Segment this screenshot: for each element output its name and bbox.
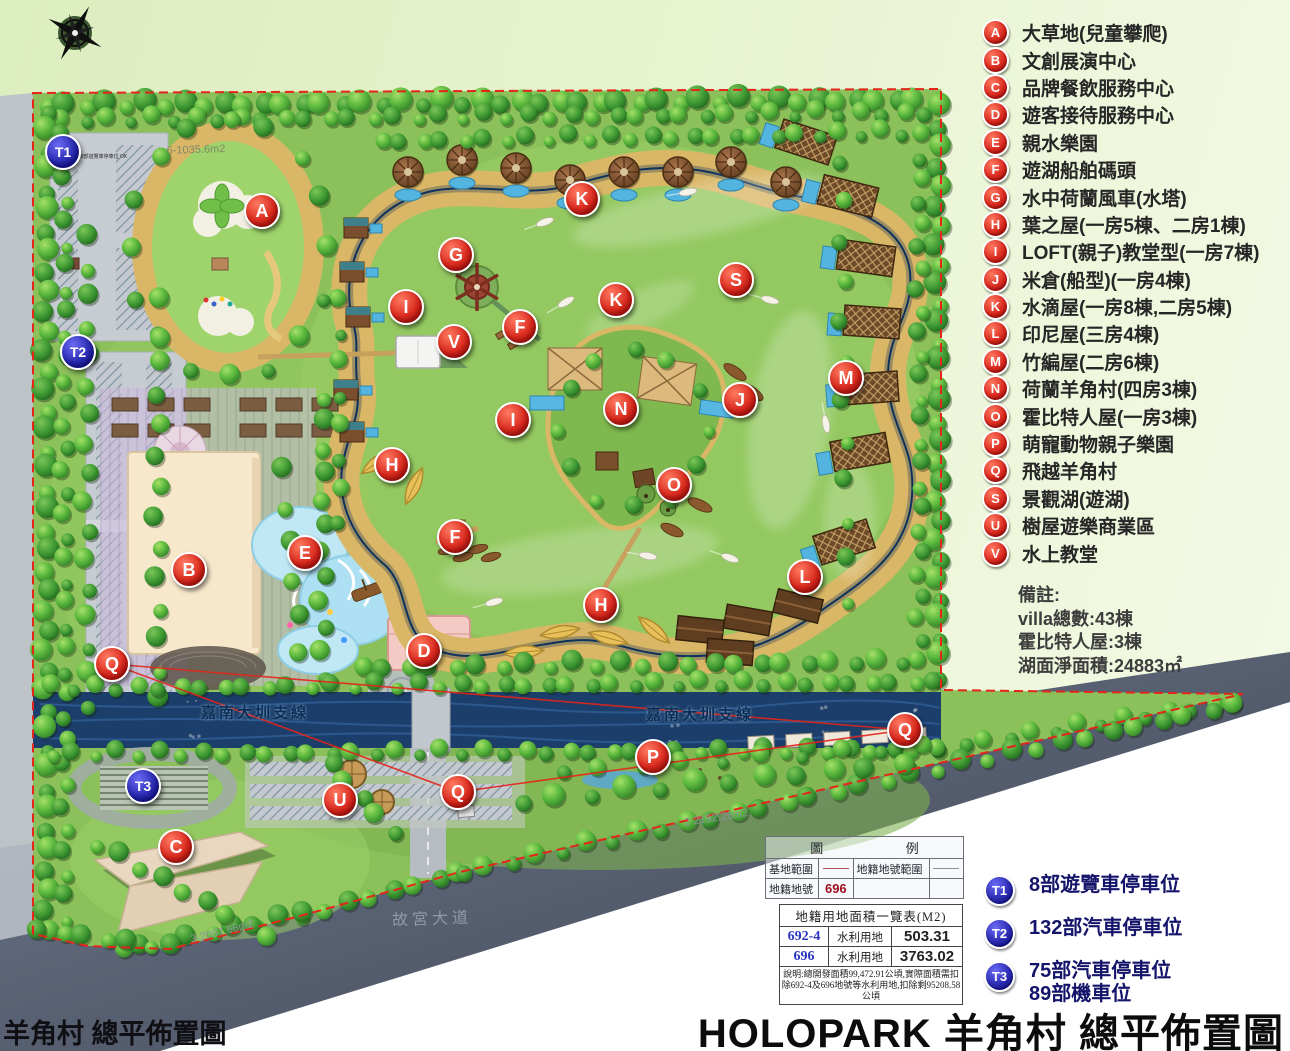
legend-item-label: 飛越羊角村 xyxy=(1022,457,1117,484)
parking-item-label: 132部汽車停車位 xyxy=(1029,917,1182,940)
legend-table-title-right: 例 xyxy=(906,838,919,857)
legend-item-S: S景觀湖(遊湖) xyxy=(982,485,1259,512)
legend-table-lot-label: 地籍地號 xyxy=(766,879,819,899)
area-table-title: 地籍用地面積一覽表(M2) xyxy=(780,905,963,927)
legend-item-E: E親水樂園 xyxy=(982,129,1259,156)
legend-item-F: F遊湖船舶碼頭 xyxy=(982,156,1259,183)
legend-item-H: H葉之屋(一房5棟、二房1棟) xyxy=(982,211,1259,238)
note-line: 霍比特人屋:3棟 xyxy=(1018,631,1182,655)
legend-item-P: P萌寵動物親子樂園 xyxy=(982,430,1259,457)
legend-marker-icon: Q xyxy=(982,457,1009,484)
area-value: 503.31 xyxy=(892,927,963,947)
legend-item-label: 荷蘭羊角村(四房3棟) xyxy=(1022,375,1197,402)
legend-item-A: A大草地(兒童攀爬) xyxy=(982,19,1259,46)
legend-item-label: 霍比特人屋(一房3棟) xyxy=(1022,403,1197,430)
parking-item-T2: T2132部汽車停車位 xyxy=(984,917,1182,949)
legend-marker-icon: L xyxy=(982,320,1009,347)
parking-item-label: 75部汽車停車位89部機車位 xyxy=(1029,960,1171,1006)
legend-item-L: L印尼屋(三房4棟) xyxy=(982,320,1259,347)
note-line: 湖面淨面積:24883㎡ xyxy=(1018,655,1182,679)
legend-item-label: 葉之屋(一房5棟、二房1棟) xyxy=(1022,211,1246,238)
parking-item-label: 8部遊覽車停車位 xyxy=(1029,874,1180,897)
legend-item-I: ILOFT(親子)教堂型(一房7棟) xyxy=(982,238,1259,265)
legend-item-O: O霍比特人屋(一房3棟) xyxy=(982,402,1259,429)
legend-item-label: 遊湖船舶碼頭 xyxy=(1022,156,1136,183)
legend-marker-icon: J xyxy=(982,266,1009,293)
legend-marker-icon: I xyxy=(982,238,1009,265)
parking-marker-icon: T1 xyxy=(984,875,1015,906)
area-value: 3763.02 xyxy=(892,947,963,967)
legend: A大草地(兒童攀爬)B文創展演中心C品牌餐飲服務中心D遊客接待服務中心E親水樂園… xyxy=(982,19,1259,567)
legend-table-lot-range: 地籍地號範圍 xyxy=(853,859,929,879)
legend-marker-icon: C xyxy=(982,74,1009,101)
area-table-note: 說明:總開發面積99,472.91公頃,實際面積需扣除692-4及696地號等水… xyxy=(780,967,963,1005)
legend-marker-icon: S xyxy=(982,485,1009,512)
site-range-swatch xyxy=(823,868,849,869)
legend-marker-icon: A xyxy=(982,19,1009,46)
legend-item-N: N荷蘭羊角村(四房3棟) xyxy=(982,375,1259,402)
legend-item-label: 樹屋遊樂商業區 xyxy=(1022,512,1155,539)
legend-marker-icon: U xyxy=(982,512,1009,539)
legend-item-label: 萌寵動物親子樂園 xyxy=(1022,430,1174,457)
parking-item-T3: T375部汽車停車位89部機車位 xyxy=(984,960,1182,1006)
legend-marker-icon: D xyxy=(982,101,1009,128)
legend-marker-icon: K xyxy=(982,293,1009,320)
legend-item-label: 文創展演中心 xyxy=(1022,47,1136,74)
table-row: 696 水利用地 3763.02 xyxy=(780,947,963,967)
footer-title: 羊角村 總平佈置圖 xyxy=(3,1012,227,1051)
parking-item-T1: T18部遊覽車停車位 xyxy=(984,874,1182,906)
legend-table-site-range: 基地範圍 xyxy=(766,859,819,879)
legend-marker-icon: H xyxy=(982,211,1009,238)
parking-marker-icon: T3 xyxy=(984,961,1015,992)
parking-legend: T18部遊覽車停車位T2132部汽車停車位T375部汽車停車位89部機車位 xyxy=(984,874,1182,1017)
legend-marker-icon: M xyxy=(982,348,1009,375)
legend-item-label: 遊客接待服務中心 xyxy=(1022,101,1174,128)
legend-item-label: LOFT(親子)教堂型(一房7棟) xyxy=(1022,238,1259,265)
site-plan-poster: 嘉南大圳支線嘉南大圳支線故宮大道6-1035.6m23-2097.66m22-2… xyxy=(0,0,1290,1051)
legend-marker-icon: N xyxy=(982,375,1009,402)
note-line: villa總數:43棟 xyxy=(1018,608,1182,632)
legend-item-label: 竹編屋(二房6棟) xyxy=(1022,348,1159,375)
area-table: 地籍用地面積一覽表(M2) 692-4 水利用地 503.31 696 水利用地… xyxy=(779,904,963,1005)
legend-item-label: 水滴屋(一房8棟,二房5棟) xyxy=(1022,293,1232,320)
parking-marker-icon: T2 xyxy=(984,918,1015,949)
area-lot: 692-4 xyxy=(780,927,829,947)
notes-lines: villa總數:43棟霍比特人屋:3棟湖面淨面積:24883㎡ xyxy=(1018,608,1182,679)
legend-item-J: J米倉(船型)(一房4棟) xyxy=(982,266,1259,293)
notes-heading: 備註: xyxy=(1018,584,1182,608)
legend-item-B: B文創展演中心 xyxy=(982,46,1259,73)
area-use: 水利用地 xyxy=(829,947,892,967)
area-lot: 696 xyxy=(780,947,829,967)
notes-block: 備註: villa總數:43棟霍比特人屋:3棟湖面淨面積:24883㎡ xyxy=(1018,584,1182,678)
legend-item-K: K水滴屋(一房8棟,二房5棟) xyxy=(982,293,1259,320)
area-use: 水利用地 xyxy=(829,927,892,947)
legend-item-G: G水中荷蘭風車(水塔) xyxy=(982,183,1259,210)
legend-item-label: 大草地(兒童攀爬) xyxy=(1022,19,1168,46)
legend-marker-icon: F xyxy=(982,156,1009,183)
page-title: HOLOPARK 羊角村 總平佈置圖 xyxy=(698,1001,1284,1051)
legend-item-V: V水上教堂 xyxy=(982,539,1259,566)
legend-table-title-left: 圖 xyxy=(810,838,823,857)
legend-item-label: 品牌餐飲服務中心 xyxy=(1022,74,1174,101)
legend-item-label: 景觀湖(遊湖) xyxy=(1022,485,1130,512)
legend-item-label: 親水樂園 xyxy=(1022,129,1098,156)
legend-item-C: C品牌餐飲服務中心 xyxy=(982,74,1259,101)
legend-item-label: 水中荷蘭風車(水塔) xyxy=(1022,184,1187,211)
legend-item-U: U樹屋遊樂商業區 xyxy=(982,512,1259,539)
legend-table-lot-number: 696 xyxy=(819,879,853,899)
legend-marker-icon: O xyxy=(982,403,1009,430)
legend-marker-icon: G xyxy=(982,184,1009,211)
legend-item-label: 印尼屋(三房4棟) xyxy=(1022,320,1159,347)
compass-icon xyxy=(34,0,115,74)
table-row: 692-4 水利用地 503.31 xyxy=(780,927,963,947)
lot-range-swatch xyxy=(933,868,959,869)
legend-marker-icon: E xyxy=(982,129,1009,156)
legend-item-M: M竹編屋(二房6棟) xyxy=(982,348,1259,375)
legend-item-label: 米倉(船型)(一房4棟) xyxy=(1022,266,1191,293)
legend-item-label: 水上教堂 xyxy=(1022,540,1098,567)
legend-table: 圖 例 基地範圍 地籍地號範圍 地籍地號 696 xyxy=(765,836,964,899)
legend-item-D: D遊客接待服務中心 xyxy=(982,101,1259,128)
legend-marker-icon: V xyxy=(982,540,1009,567)
legend-marker-icon: P xyxy=(982,430,1009,457)
legend-marker-icon: B xyxy=(982,47,1009,74)
legend-item-Q: Q飛越羊角村 xyxy=(982,457,1259,484)
